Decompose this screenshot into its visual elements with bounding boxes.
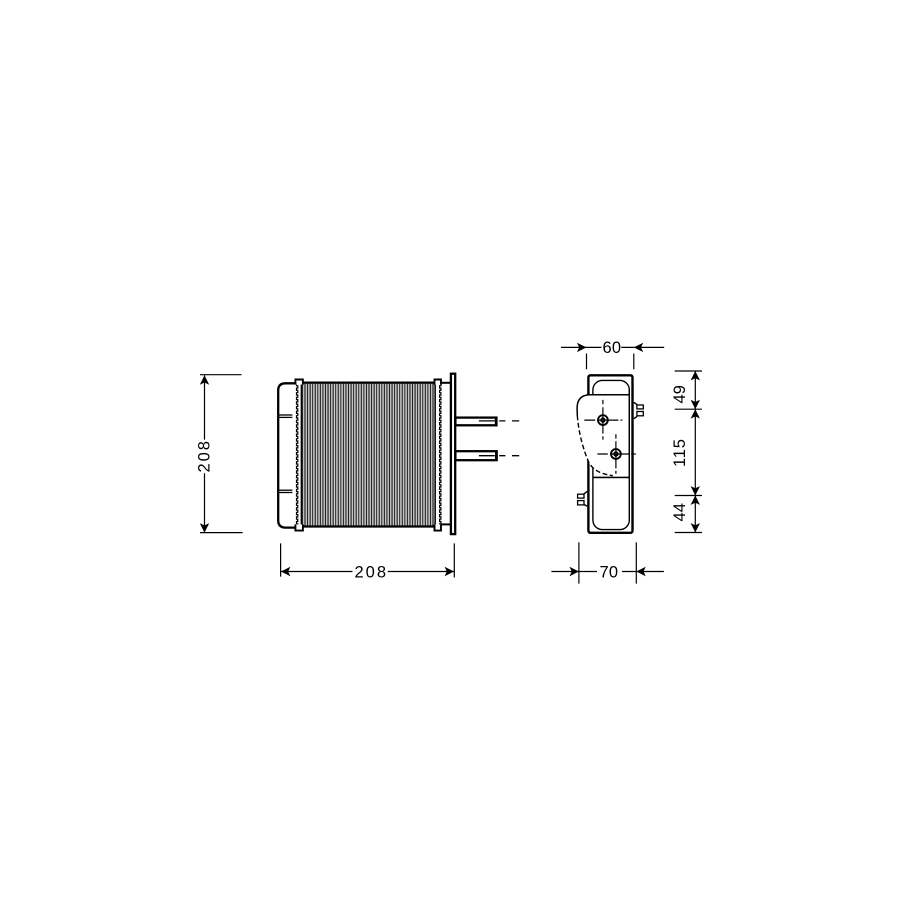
svg-text:60: 60	[603, 339, 622, 357]
svg-text:208: 208	[196, 441, 214, 473]
svg-text:49: 49	[671, 385, 689, 404]
svg-text:44: 44	[671, 503, 689, 522]
svg-text:70: 70	[600, 564, 619, 582]
svg-text:208: 208	[355, 564, 387, 582]
svg-text:115: 115	[671, 439, 689, 467]
